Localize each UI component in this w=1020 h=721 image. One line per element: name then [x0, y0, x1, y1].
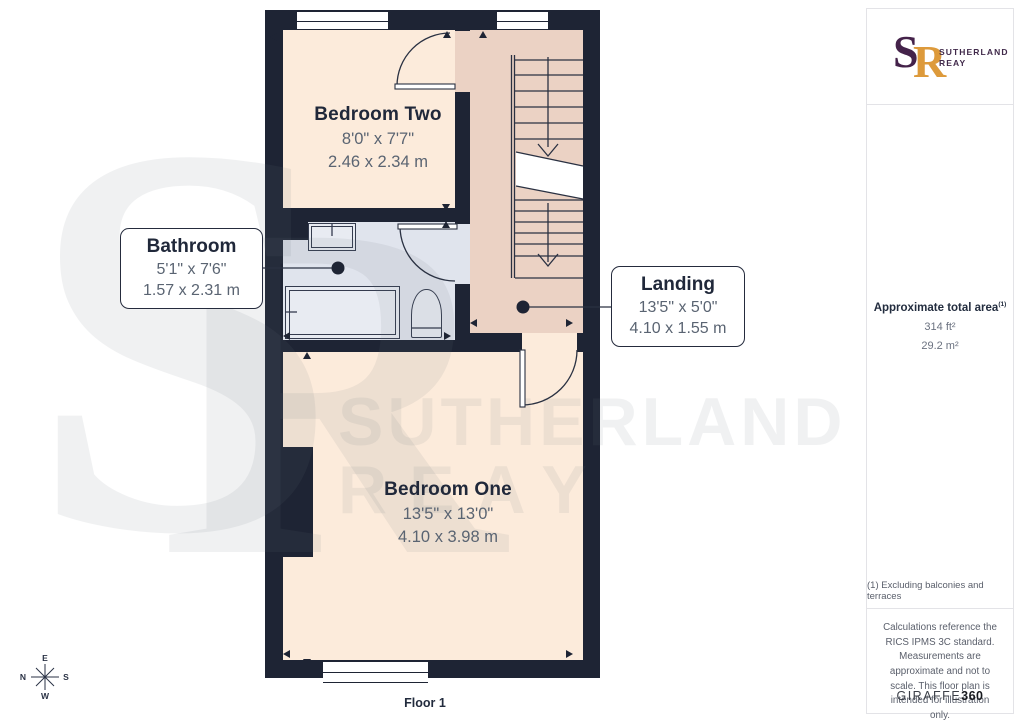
chimney-breast-wall	[283, 447, 313, 557]
room-size-imperial: 5'1" x 7'6"	[131, 261, 252, 279]
label-bedroom-one: Bedroom One 13'5" x 13'0" 4.10 x 3.98 m	[348, 479, 548, 547]
total-area-title: Approximate total area(1)	[867, 301, 1013, 314]
room-name: Landing	[622, 274, 734, 296]
logo-word-line1: SUTHERLAND	[939, 47, 1009, 58]
total-area-metric: 29.2 m²	[867, 340, 1013, 352]
giraffe360-brand: GIRAFFE360	[867, 689, 1013, 703]
toilet-icon	[411, 289, 442, 338]
bathtub-icon	[285, 286, 400, 339]
window-bedroom-one	[323, 661, 428, 683]
room-size-imperial: 13'5" x 13'0"	[348, 505, 548, 524]
callout-landing: Landing 13'5" x 5'0" 4.10 x 1.55 m	[611, 266, 745, 347]
room-size-imperial: 8'0" x 7'7"	[288, 130, 468, 149]
compass-east: E	[38, 653, 52, 663]
callout-bathroom: Bathroom 5'1" x 7'6" 1.57 x 2.31 m	[120, 228, 263, 309]
room-size-metric: 4.10 x 3.98 m	[348, 528, 548, 547]
room-size-imperial: 13'5" x 5'0"	[622, 299, 734, 317]
logo-wordmark: SUTHERLAND REAY	[939, 47, 1009, 70]
room-size-metric: 2.46 x 2.34 m	[288, 153, 468, 172]
room-name: Bedroom Two	[288, 104, 468, 126]
doorway-bedroom-one	[522, 333, 577, 352]
room-size-metric: 1.57 x 2.31 m	[131, 282, 252, 300]
disclaimer: Calculations reference the RICS IPMS 3C …	[867, 609, 1013, 721]
doorway-bathroom	[455, 224, 470, 284]
floor-label: Floor 1	[375, 696, 475, 710]
agency-logo: S R SUTHERLAND REAY	[867, 9, 1013, 105]
compass-north: N	[16, 672, 30, 682]
room-name: Bedroom One	[348, 479, 548, 501]
brand-suffix: 360	[961, 689, 983, 703]
sink-icon	[308, 223, 356, 251]
floor-plan-page: S R SUTHERLAND REAY	[0, 0, 1020, 721]
window-bedroom-two	[297, 11, 388, 30]
room-name: Bathroom	[131, 236, 252, 258]
logo-word-line2: REAY	[939, 58, 1009, 69]
window-landing	[497, 11, 548, 30]
total-area-block: Approximate total area(1) 314 ft² 29.2 m…	[867, 301, 1013, 352]
compass-south: S	[59, 672, 73, 682]
compass-west: W	[38, 691, 52, 701]
footnote-marker: (1)	[998, 301, 1006, 308]
info-sidebar: S R SUTHERLAND REAY Approximate total ar…	[866, 8, 1014, 714]
brand-name: GIRAFFE	[896, 689, 961, 703]
total-area-imperial: 314 ft²	[867, 321, 1013, 333]
label-bedroom-two: Bedroom Two 8'0" x 7'7" 2.46 x 2.34 m	[288, 104, 468, 172]
room-size-metric: 4.10 x 1.55 m	[622, 320, 734, 338]
doorway-bedroom-two	[455, 31, 470, 92]
room-landing-floor	[470, 30, 583, 333]
footnote: (1) Excluding balconies and terraces	[867, 574, 1013, 609]
